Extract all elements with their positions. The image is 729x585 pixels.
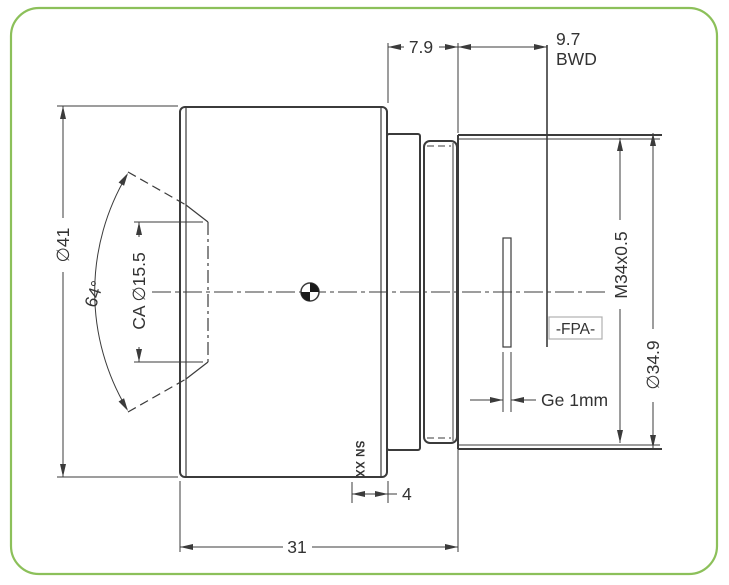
window-label: Ge 1mm (541, 390, 608, 410)
fov-angle-label: 64° (80, 278, 107, 309)
serial-marking-label: SN XX (353, 440, 365, 477)
cone-edge-bottom (186, 362, 208, 379)
flange-offset-label: 7.9 (409, 37, 433, 57)
technical-drawing: ∅41 64° CA ∅15.5 7.9 9.7 BWD M34x0.5 ∅34… (0, 0, 729, 585)
marking-band-width-label: 4 (402, 484, 412, 504)
thread-label: M34x0.5 (611, 231, 631, 298)
fov-arc-arrow-top (119, 171, 131, 185)
bwd-unit-label: BWD (556, 49, 597, 69)
cog-symbol (301, 283, 319, 301)
clear-aperture-label: CA ∅15.5 (129, 252, 149, 330)
fov-arc-arrow-bottom (119, 398, 131, 412)
cone-edge-top (186, 205, 208, 222)
rear-diameter-label: ∅34.9 (643, 340, 663, 389)
fov-ray-bottom (128, 379, 186, 412)
bwd-value-label: 9.7 (556, 29, 580, 49)
drawing-canvas: ∅41 64° CA ∅15.5 7.9 9.7 BWD M34x0.5 ∅34… (0, 0, 729, 585)
lens-outline (128, 45, 662, 477)
body-length-label: 31 (287, 537, 306, 557)
fpa-label: -FPA- (556, 321, 595, 338)
front-diameter-label: ∅41 (53, 228, 73, 263)
fov-ray-top (128, 172, 186, 205)
